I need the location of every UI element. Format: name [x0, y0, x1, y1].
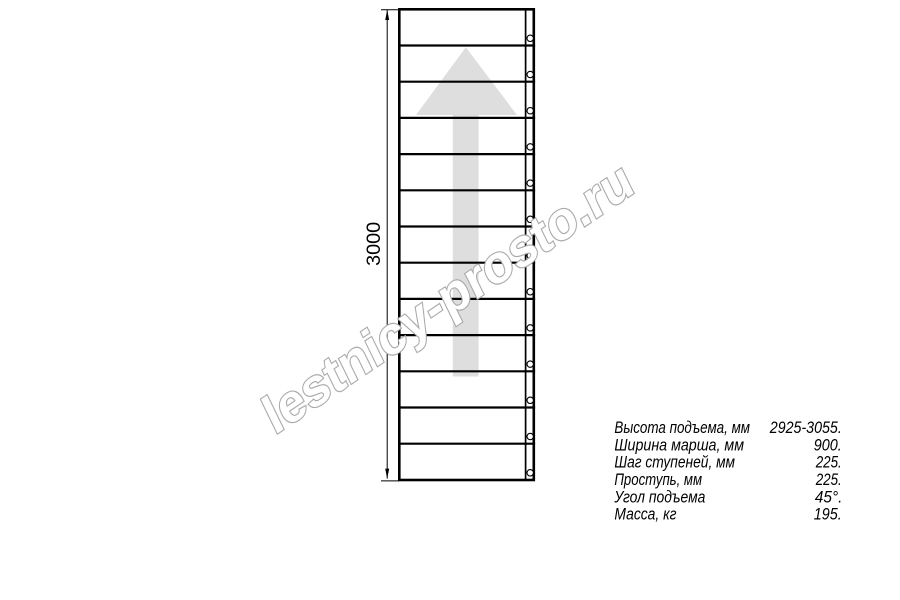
- svg-text:225.: 225.: [815, 471, 842, 489]
- svg-text:3000: 3000: [363, 222, 385, 266]
- svg-text:195.: 195.: [814, 506, 842, 524]
- svg-text:Проступь, мм: Проступь, мм: [614, 471, 702, 489]
- svg-text:Ширина марша, мм: Ширина марша, мм: [614, 436, 744, 454]
- svg-text:Шаг ступеней, мм: Шаг ступеней, мм: [614, 454, 735, 472]
- svg-text:225.: 225.: [815, 454, 842, 472]
- svg-text:Высота подъема, мм: Высота подъема, мм: [614, 419, 750, 437]
- svg-text:Угол подъема: Угол подъема: [614, 488, 706, 506]
- svg-text:45°.: 45°.: [815, 488, 843, 506]
- svg-text:2925-3055.: 2925-3055.: [769, 419, 842, 437]
- svg-text:900.: 900.: [814, 436, 842, 454]
- svg-text:Масса, кг: Масса, кг: [614, 506, 676, 524]
